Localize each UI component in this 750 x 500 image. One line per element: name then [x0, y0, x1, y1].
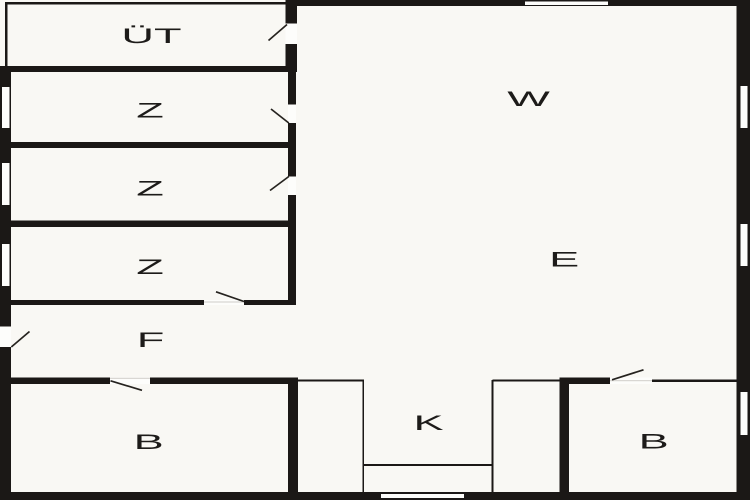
- svg-text:F: F: [137, 329, 165, 352]
- svg-text:K: K: [413, 412, 443, 435]
- svg-text:B: B: [639, 431, 669, 454]
- svg-text:ÜT: ÜT: [121, 25, 182, 48]
- svg-text:Z: Z: [136, 256, 164, 279]
- svg-text:W: W: [507, 88, 550, 111]
- svg-text:B: B: [134, 431, 164, 454]
- svg-text:Z: Z: [136, 178, 164, 201]
- svg-text:E: E: [549, 249, 579, 272]
- svg-text:Z: Z: [136, 100, 164, 123]
